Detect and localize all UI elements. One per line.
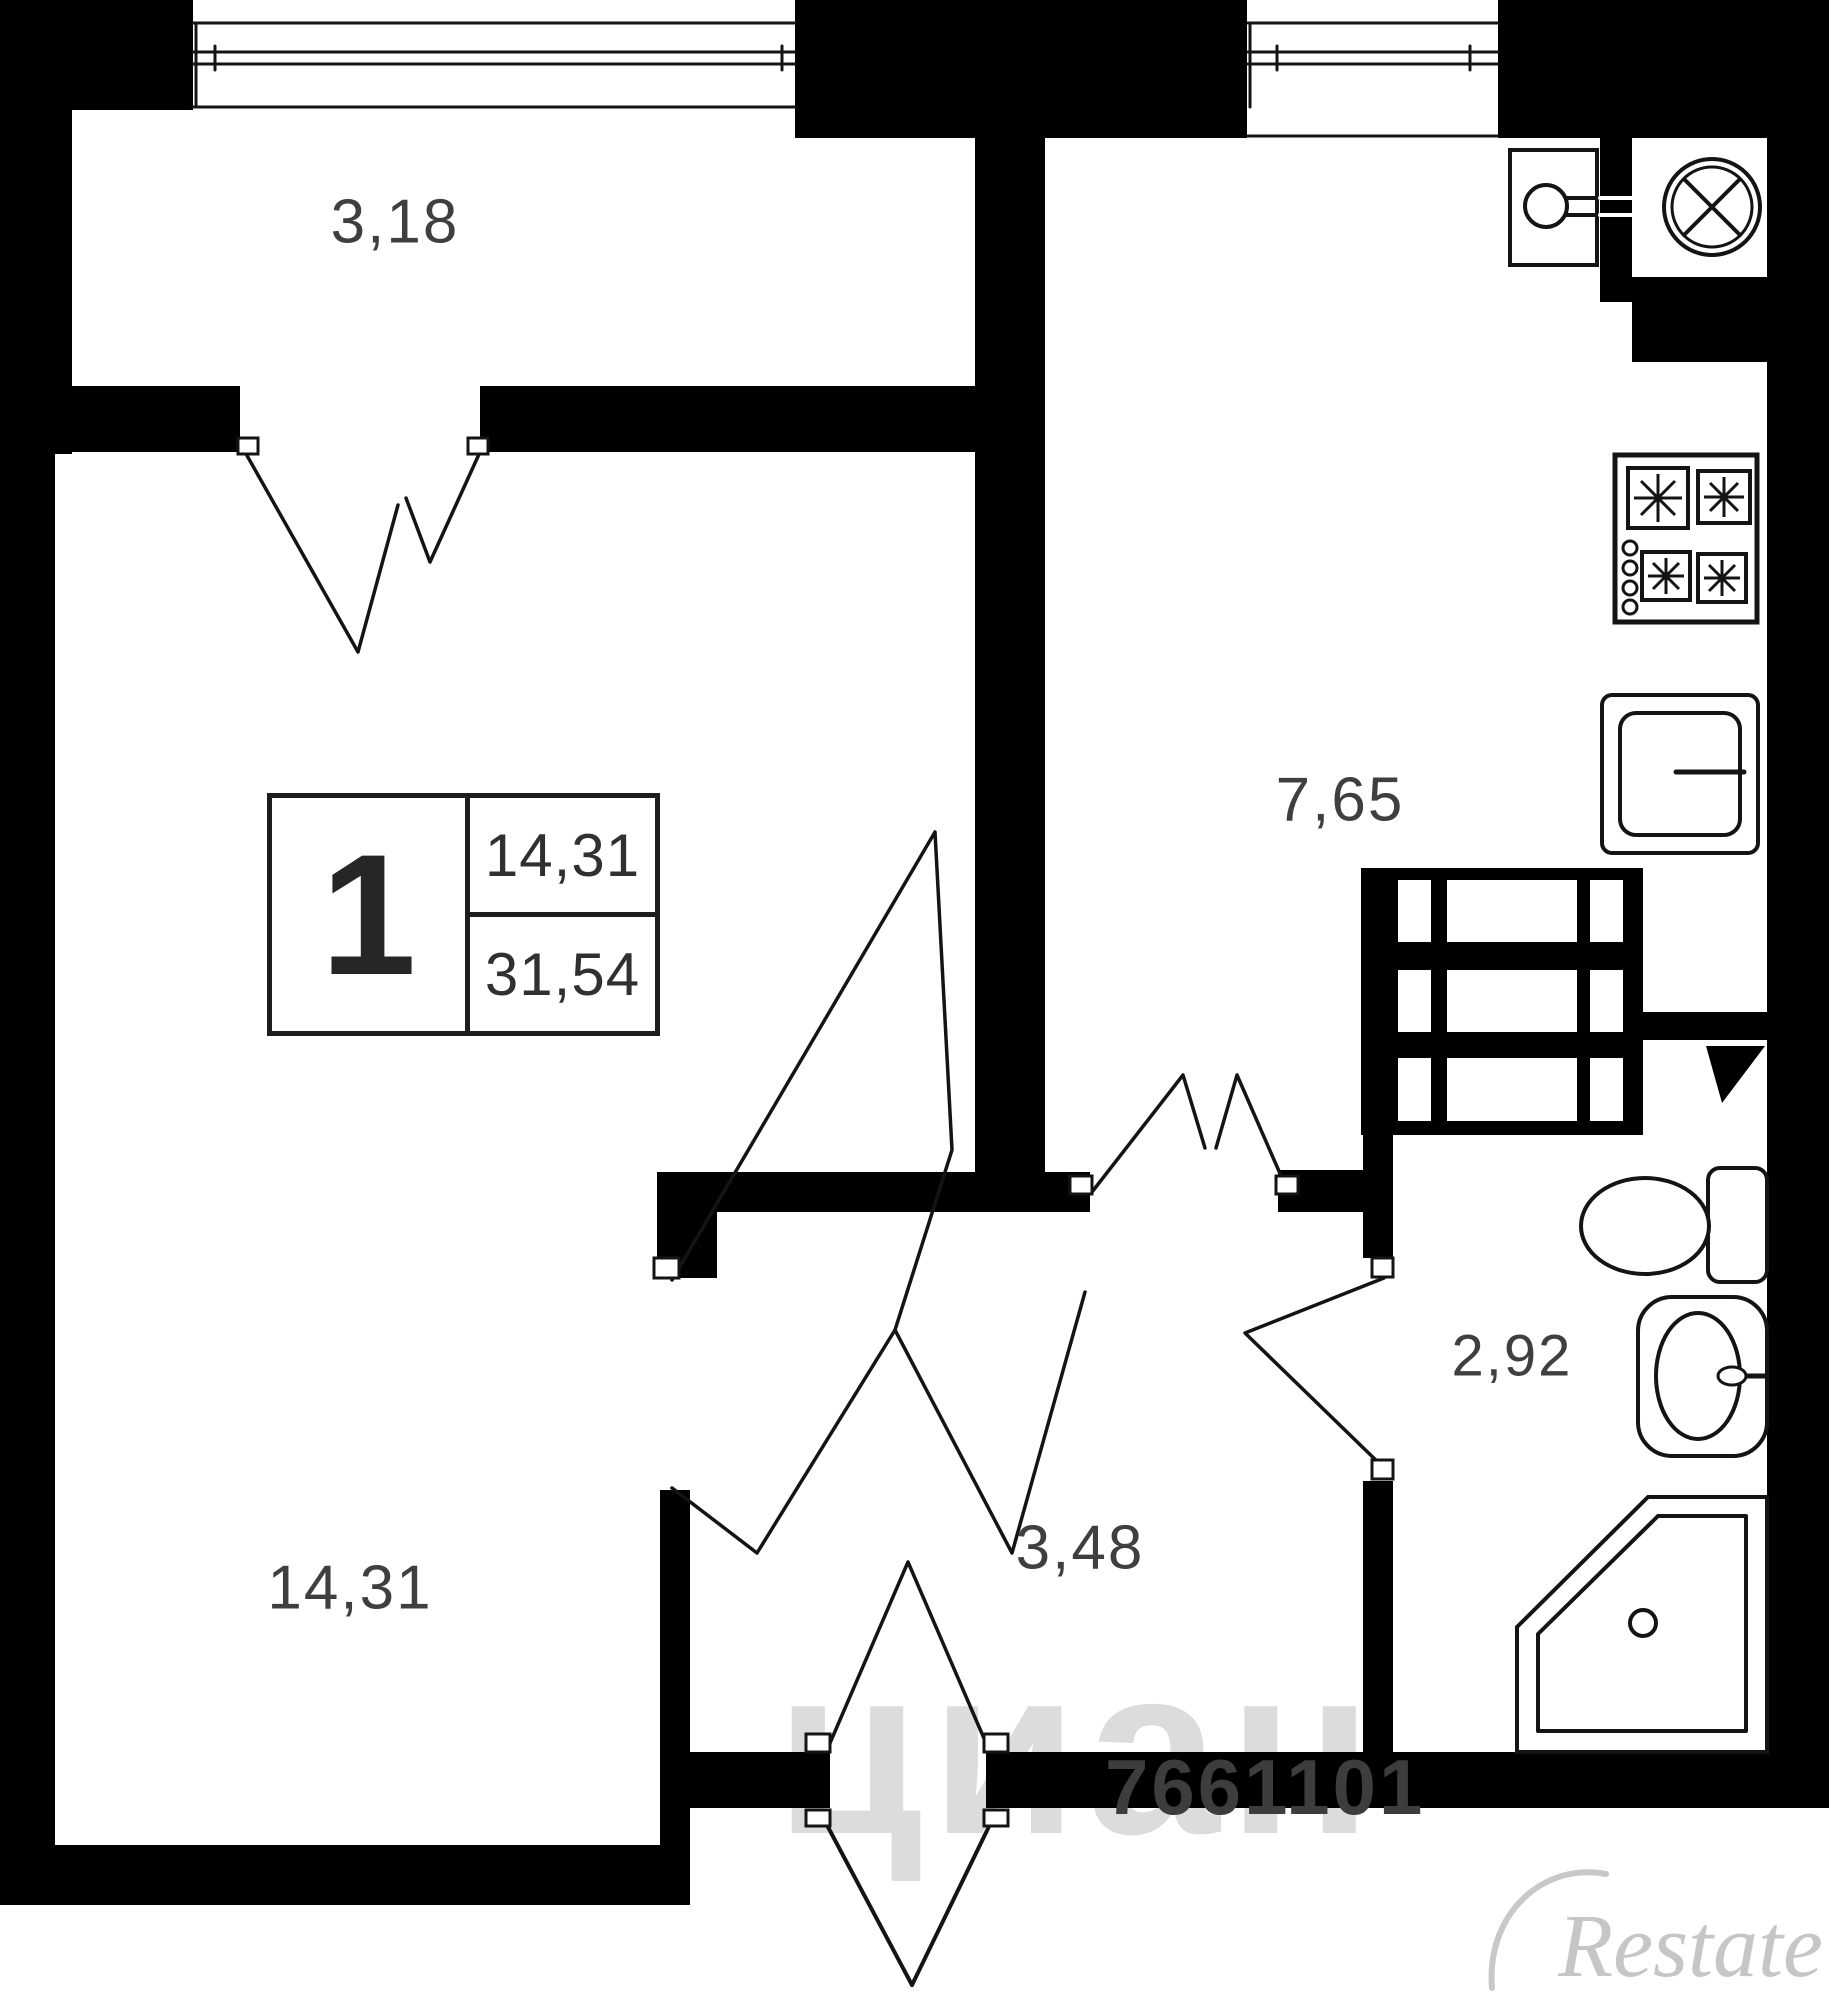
room-label-balcony: 3,18 [331, 187, 460, 258]
floorplan-canvas: циан 3,1814,317,653,482,92 1 14,31 31,54… [0, 0, 1829, 2000]
living-bottom-wall [0, 1845, 690, 1905]
stove-knob-2 [1623, 561, 1637, 575]
shower-drain [1630, 1610, 1656, 1636]
hinge-balcony-right [468, 438, 488, 454]
left-outer-wall [0, 108, 55, 1905]
hinge-kitchen-right [1276, 1176, 1298, 1194]
shaft-cell [1447, 1058, 1577, 1121]
shaft-cell [1590, 970, 1623, 1032]
hinge-bath-top [1372, 1258, 1393, 1277]
top-left-corner-block [0, 0, 193, 110]
door-leaf-balcony-left [245, 452, 398, 652]
room-label-hallway: 3,48 [1016, 1513, 1145, 1584]
stove-knob-3 [1623, 581, 1637, 595]
bath-wall-upper [1363, 1135, 1393, 1258]
watermark-brand: Restate [1558, 1902, 1823, 1992]
toilet-tank [1708, 1168, 1767, 1282]
door-leaf-kitchen-right [1216, 1075, 1285, 1185]
shaft-cell [1398, 1058, 1431, 1121]
balcony-inner-wall-left [28, 386, 240, 452]
door-leaf-balcony-right [406, 452, 480, 562]
burner-star-1 [1634, 474, 1682, 522]
shaft-cell [1590, 1058, 1623, 1121]
shaft-cell [1590, 880, 1623, 942]
toilet-bowl [1581, 1178, 1709, 1274]
living-kitchen-wall [975, 108, 1045, 1212]
door-leaf-bathroom [1245, 1278, 1384, 1468]
bath-sink-knob [1718, 1367, 1746, 1385]
hinge-entry-right [984, 1734, 1008, 1752]
apartment-info-box: 1 14,31 31,54 [267, 793, 660, 1036]
balcony-inner-wall-right [480, 386, 975, 452]
living-area-value: 14,31 [470, 798, 655, 917]
burner-star-2 [1704, 477, 1744, 517]
rooms-count: 1 [272, 798, 470, 1031]
door-leaf-entry [830, 1562, 986, 1743]
hinge-kitchen-left [1070, 1176, 1092, 1194]
room-label-bathroom: 2,92 [1452, 1323, 1573, 1390]
areas-column: 14,31 31,54 [470, 798, 655, 1031]
stove-knob-1 [1623, 541, 1637, 555]
door-leaf-kitchen-left [1092, 1075, 1205, 1192]
watermark-listing-id: 7661101 [1105, 1748, 1425, 1826]
hinge-entry-out-left [806, 1810, 830, 1826]
hinge-living [654, 1258, 679, 1278]
hinge-entry-out-right [984, 1810, 1008, 1826]
corner-flag [1706, 1046, 1765, 1103]
living-hall-wall [660, 1490, 690, 1905]
right-outer-wall [1767, 138, 1829, 1808]
door-entry-outside-left [820, 1812, 912, 1985]
shaft-cell [1447, 970, 1577, 1032]
hinge-balcony-left [238, 438, 258, 454]
total-area-value: 31,54 [470, 917, 655, 1031]
burner-star-4 [1704, 560, 1740, 596]
shaft-cell [1447, 880, 1577, 942]
boiler-circle [1525, 185, 1567, 227]
hinge-entry-left [806, 1734, 830, 1752]
door-star-lower-left [672, 1330, 895, 1553]
stove-knob-4 [1623, 600, 1637, 614]
top-right-corner-block [1498, 0, 1829, 138]
bath-wall-lower [1363, 1481, 1393, 1752]
room-label-kitchen: 7,65 [1276, 765, 1405, 836]
vent-niche-strip [1600, 138, 1632, 302]
room-label-living-room: 14,31 [267, 1553, 432, 1624]
door-entry-outside-right [912, 1812, 996, 1985]
burner-star-3 [1648, 558, 1684, 594]
kitchen-bath-wall [1643, 1012, 1767, 1040]
shaft-cell [1398, 880, 1431, 942]
hinge-bath-bottom [1372, 1460, 1393, 1479]
shaft-cell [1398, 970, 1431, 1032]
